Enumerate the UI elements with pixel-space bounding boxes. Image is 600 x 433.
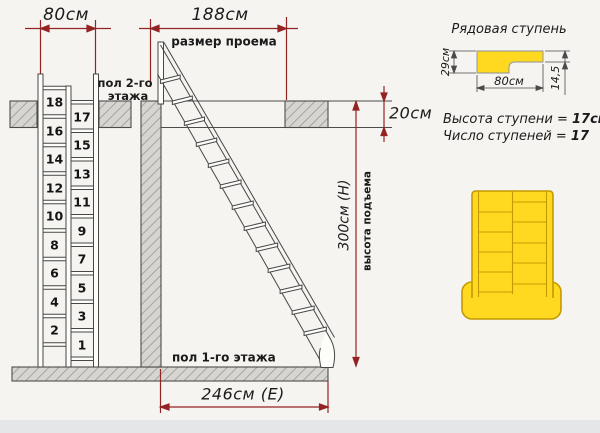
ladder-rung — [43, 286, 66, 290]
stair-tread — [256, 243, 277, 252]
ladder-step-number: 4 — [50, 294, 59, 309]
step-nose-label: 14,5 — [550, 66, 562, 91]
ladder-rung — [43, 143, 66, 147]
ladder-step-number: 17 — [73, 109, 90, 124]
stair-rail-lines — [161, 43, 335, 341]
ladder-rung — [71, 300, 94, 304]
stair-tread — [196, 138, 216, 147]
floor2-slab-left — [10, 101, 37, 128]
ladder-step-number: 15 — [73, 138, 90, 153]
ladder-rung — [71, 215, 94, 219]
diagram-linework — [0, 0, 600, 433]
ladder-rail-right — [94, 74, 99, 367]
floor2-slab-right — [285, 101, 328, 128]
stair-graphic — [158, 42, 335, 368]
spec-step-height-label: Высота ступени = — [443, 112, 572, 127]
step-detail-title: Рядовая ступень — [451, 23, 566, 37]
stair-tread — [244, 222, 265, 231]
spec-step-count-label: Число ступеней = — [443, 129, 571, 144]
spec-step-count-value: 17 — [571, 129, 589, 144]
stair-tread — [280, 285, 302, 294]
ladder-step-number: 16 — [46, 123, 63, 138]
ladder-rung — [71, 357, 94, 361]
ladder-rung — [43, 200, 66, 204]
ladder-rung — [43, 314, 66, 318]
opening-caption: размер проема — [171, 36, 277, 49]
floor2-caption-line2: этажа — [108, 90, 148, 102]
stair-tread — [208, 159, 229, 168]
ladder-rung — [43, 257, 66, 261]
floor1-slab — [12, 367, 328, 381]
ladder-step-number: 3 — [78, 309, 87, 324]
stair-tread — [292, 306, 314, 315]
ladder-rung — [71, 243, 94, 247]
ladder-step-number: 6 — [50, 266, 59, 281]
dim-label-188cm: 188см — [191, 7, 248, 25]
ladder-rung — [43, 115, 66, 119]
step-depth-label: 29см — [440, 48, 452, 76]
ladder-rung — [43, 86, 66, 90]
dim-label-80cm: 80см — [43, 7, 89, 25]
ladder-step-number: 1 — [78, 337, 87, 352]
ladder-rung — [71, 158, 94, 162]
stair-tread — [304, 327, 326, 336]
ladder-step-number: 11 — [73, 195, 90, 210]
ladder-rung — [71, 272, 94, 276]
dim-label-20cm: 20см — [389, 106, 432, 123]
dim-label-246cm: 246см (Е) — [201, 387, 285, 404]
stair-tread — [184, 117, 204, 126]
ladder-step-number: 8 — [50, 237, 59, 252]
ladder-step-number: 18 — [46, 95, 63, 110]
stair-plan-view — [462, 191, 561, 319]
ladder-step-number: 9 — [78, 223, 87, 238]
ladder-rung — [43, 172, 66, 176]
spec-step-count: Число ступеней = 17 — [443, 130, 589, 144]
ladder-rung — [71, 329, 94, 333]
ladder-rung — [71, 129, 94, 133]
step-width-label: 80см — [494, 75, 524, 87]
stair-tread — [268, 264, 290, 273]
step-profile — [477, 51, 543, 73]
rise-caption: высота подъема — [362, 171, 373, 271]
floor2-caption-line1: пол 2-го — [98, 77, 153, 89]
ladder-step-number: 2 — [50, 323, 59, 338]
page-margin — [0, 420, 600, 433]
ladder-step-number: 13 — [73, 166, 90, 181]
ladder-rung — [71, 101, 94, 105]
ladder-step-number: 7 — [78, 252, 87, 267]
bearing-wall — [141, 101, 161, 367]
ladder-rail-left — [38, 74, 43, 367]
stair-tread — [220, 180, 241, 189]
spec-step-height-value: 17см — [572, 112, 600, 127]
ladder-step-number: 14 — [46, 152, 63, 167]
stair-tread — [232, 201, 253, 210]
ladder-rung — [71, 186, 94, 190]
dim-label-rise-height: 300см (Н) — [338, 180, 353, 251]
floor1-caption: пол 1-го этажа — [172, 352, 276, 365]
floor2-slab-middle — [99, 101, 131, 128]
ladder-rung — [43, 343, 66, 347]
ladder-step-number: 10 — [46, 209, 63, 224]
staircase-dimension-diagram: 80см 188см размер проема пол 2-го этажа … — [0, 0, 600, 433]
stair-tread — [172, 96, 192, 105]
stair-top-post — [158, 42, 164, 104]
ladder-step-number: 5 — [78, 280, 87, 295]
ladder-step-number: 12 — [46, 180, 63, 195]
spec-step-height: Высота ступени = 17см — [443, 113, 600, 127]
stair-foot — [319, 331, 334, 368]
ladder-rail-middle — [66, 86, 71, 367]
ladder-rung — [43, 229, 66, 233]
